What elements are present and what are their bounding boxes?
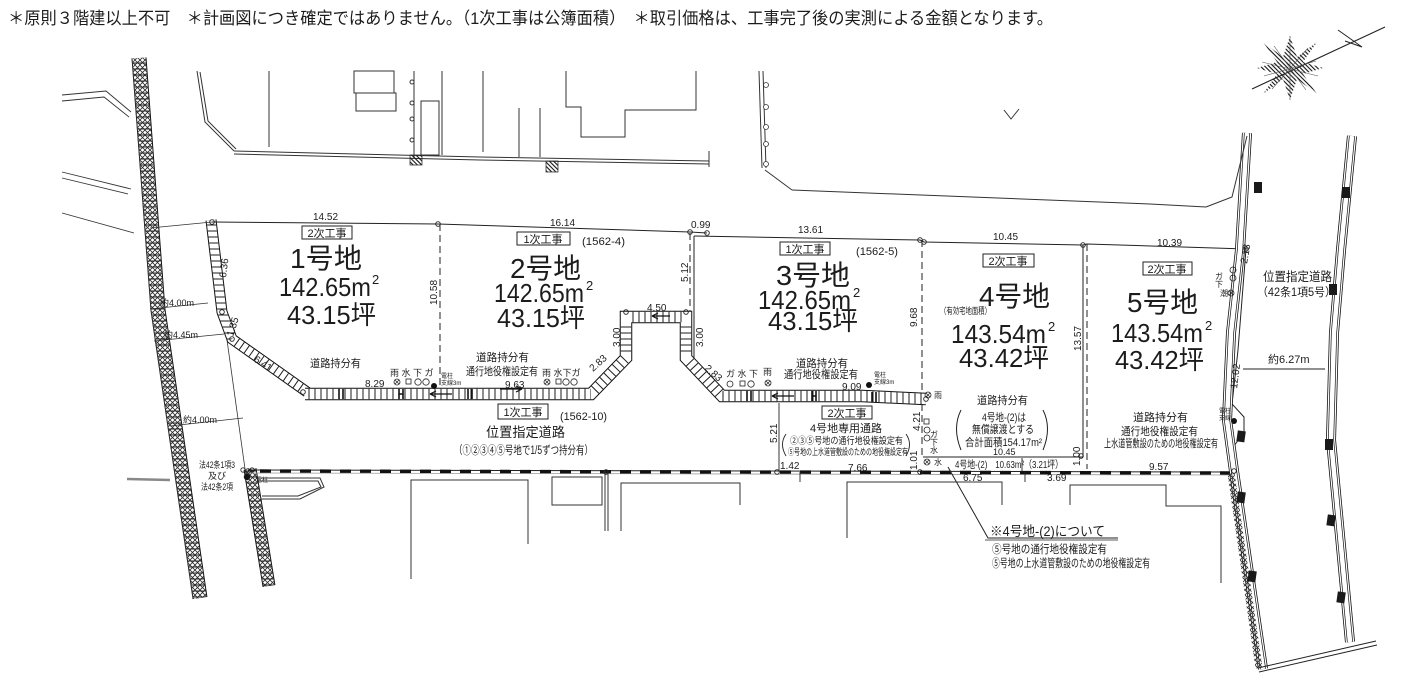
svg-text:14.52: 14.52 (313, 212, 338, 223)
svg-text:潮: 潮 (1220, 288, 1228, 298)
svg-text:道路持分有: 道路持分有 (796, 356, 848, 370)
svg-text:4号地-(2)は: 4号地-(2)は (982, 411, 1026, 424)
svg-text:2: 2 (586, 278, 593, 293)
svg-text:10.45: 10.45 (993, 232, 1018, 243)
svg-text:43.15坪: 43.15坪 (287, 300, 376, 330)
svg-text:7.66: 7.66 (848, 463, 868, 474)
svg-text:約4.45m: 約4.45m (164, 329, 198, 340)
svg-text:ガ 水 下: ガ 水 下 (726, 368, 758, 379)
svg-text:雨 水 下 ガ: 雨 水 下 ガ (390, 367, 434, 378)
svg-text:4.21: 4.21 (912, 411, 923, 431)
svg-text:電柱: 電柱 (1219, 407, 1231, 415)
svg-text:雨: 雨 (934, 391, 942, 400)
svg-text:10.45: 10.45 (993, 447, 1016, 457)
svg-text:電柱: 電柱 (874, 371, 886, 379)
svg-text:(1562-4): (1562-4) (582, 236, 625, 248)
svg-text:2次工事: 2次工事 (988, 254, 1027, 268)
svg-text:及び: 及び (208, 471, 226, 481)
svg-text:道路持分有: 道路持分有 (1133, 410, 1188, 424)
svg-text:1次工事: 1次工事 (523, 232, 562, 246)
svg-text:9.68: 9.68 (909, 307, 920, 327)
svg-text:(1562-5): (1562-5) (856, 246, 898, 258)
svg-text:3.69: 3.69 (1047, 473, 1067, 484)
svg-text:ガ下: ガ下 (1215, 272, 1224, 289)
svg-text:5.21: 5.21 (769, 423, 780, 443)
svg-text:道路持分有: 道路持分有 (977, 393, 1028, 407)
svg-text:1次工事: 1次工事 (785, 242, 824, 256)
svg-text:2: 2 (1205, 318, 1212, 333)
svg-text:2次工事: 2次工事 (1147, 262, 1186, 276)
svg-text:通行地役権設定有: 通行地役権設定有 (1121, 424, 1198, 438)
svg-text:約4.00m: 約4.00m (183, 414, 217, 425)
svg-text:2次工事: 2次工事 (307, 226, 346, 240)
svg-text:雨 水下ガ: 雨 水下ガ (542, 367, 581, 378)
svg-text:2次工事: 2次工事 (827, 406, 866, 420)
svg-text:2: 2 (853, 285, 860, 300)
svg-text:4号地専用通路: 4号地専用通路 (810, 422, 882, 435)
svg-text:ガ下水: ガ下水 (930, 430, 939, 454)
svg-text:2: 2 (1048, 319, 1055, 334)
svg-text:1.42: 1.42 (780, 461, 800, 472)
svg-text:⑤号地の上水道管敷設のための地役権設定有: ⑤号地の上水道管敷設のための地役権設定有 (992, 556, 1150, 570)
svg-text:9.57: 9.57 (1149, 462, 1169, 473)
svg-text:16.14: 16.14 (550, 218, 575, 229)
svg-text:6.75: 6.75 (963, 473, 983, 484)
svg-text:通行地役権設定有: 通行地役権設定有 (784, 367, 858, 381)
svg-text:電柱: 電柱 (441, 372, 453, 380)
svg-text:2: 2 (372, 272, 379, 287)
svg-text:（42条1項5号）: （42条1項5号） (1257, 285, 1336, 299)
svg-text:43.42坪: 43.42坪 (1115, 345, 1204, 375)
svg-text:（①②③④⑤号地で1/5ずつ持分有）: （①②③④⑤号地で1/5ずつ持分有） (454, 443, 593, 457)
svg-text:143.54m: 143.54m (1111, 318, 1203, 348)
svg-text:1号地: 1号地 (290, 243, 362, 274)
svg-text:8.29: 8.29 (365, 379, 385, 390)
svg-text:（有効宅地面積）: （有効宅地面積） (940, 305, 991, 316)
svg-text:⑤号地の上水道管敷設のための地役権設定有: ⑤号地の上水道管敷設のための地役権設定有 (788, 446, 908, 457)
svg-text:4号地-(2) 10.63m²（3.21坪）: 4号地-(2) 10.63m²（3.21坪） (955, 458, 1063, 471)
svg-text:1.00: 1.00 (1072, 446, 1083, 466)
svg-text:※4号地-(2)について: ※4号地-(2)について (990, 524, 1105, 539)
svg-text:10.39: 10.39 (1157, 238, 1182, 249)
svg-text:無償譲渡とする: 無償譲渡とする (972, 422, 1034, 436)
svg-text:支線: 支線 (1219, 414, 1231, 422)
svg-text:1次工事: 1次工事 (503, 405, 542, 419)
svg-text:②③⑤号地の通行地役権設定有: ②③⑤号地の通行地役権設定有 (790, 435, 903, 447)
svg-text:通行地役権設定有: 通行地役権設定有 (466, 364, 538, 378)
svg-text:＊原則３階建以上不可 ＊計画図につき確定ではありません。（1: ＊原則３階建以上不可 ＊計画図につき確定ではありません。（1次工事は公簿面積） … (8, 9, 1053, 28)
svg-text:9.63: 9.63 (505, 380, 525, 391)
svg-text:10.58: 10.58 (429, 280, 440, 305)
svg-text:43.42坪: 43.42坪 (959, 343, 1049, 373)
svg-text:43.15坪: 43.15坪 (497, 303, 585, 333)
svg-text:水: 水 (934, 457, 942, 467)
svg-text:電柱: 電柱 (256, 476, 268, 484)
svg-text:13.57: 13.57 (1073, 326, 1084, 351)
svg-text:法42条2項: 法42条2項 (201, 481, 233, 492)
svg-text:9.09: 9.09 (842, 382, 862, 393)
svg-text:3.00: 3.00 (612, 327, 623, 347)
svg-text:支線3m: 支線3m (874, 378, 894, 386)
svg-text:上水道管敷設のための地役権設定有: 上水道管敷設のための地役権設定有 (1104, 436, 1218, 450)
svg-text:雨: 雨 (763, 367, 772, 377)
svg-text:約6.27m: 約6.27m (1268, 352, 1310, 366)
svg-text:142.65m: 142.65m (279, 272, 371, 302)
svg-text:⑤号地の通行地役権設定有: ⑤号地の通行地役権設定有 (992, 542, 1107, 556)
svg-text:道路持分有: 道路持分有 (476, 350, 529, 364)
svg-text:5号地: 5号地 (1127, 287, 1198, 318)
svg-text:0.99: 0.99 (691, 220, 711, 231)
svg-text:4.50: 4.50 (647, 303, 667, 314)
svg-text:43.15坪: 43.15坪 (768, 306, 858, 336)
svg-text:支線3m: 支線3m (441, 379, 461, 387)
svg-text:約4.00m: 約4.00m (160, 297, 194, 308)
svg-text:位置指定道路: 位置指定道路 (1263, 269, 1332, 284)
svg-text:位置指定道路: 位置指定道路 (486, 425, 565, 440)
svg-text:1.01: 1.01 (909, 450, 920, 470)
svg-text:5.12: 5.12 (680, 262, 691, 282)
svg-text:3.00: 3.00 (695, 327, 706, 347)
svg-text:(1562-10): (1562-10) (560, 411, 607, 423)
svg-text:法42条1項3: 法42条1項3 (199, 459, 235, 470)
svg-text:道路持分有: 道路持分有 (310, 356, 361, 370)
svg-text:13.61: 13.61 (798, 225, 823, 236)
